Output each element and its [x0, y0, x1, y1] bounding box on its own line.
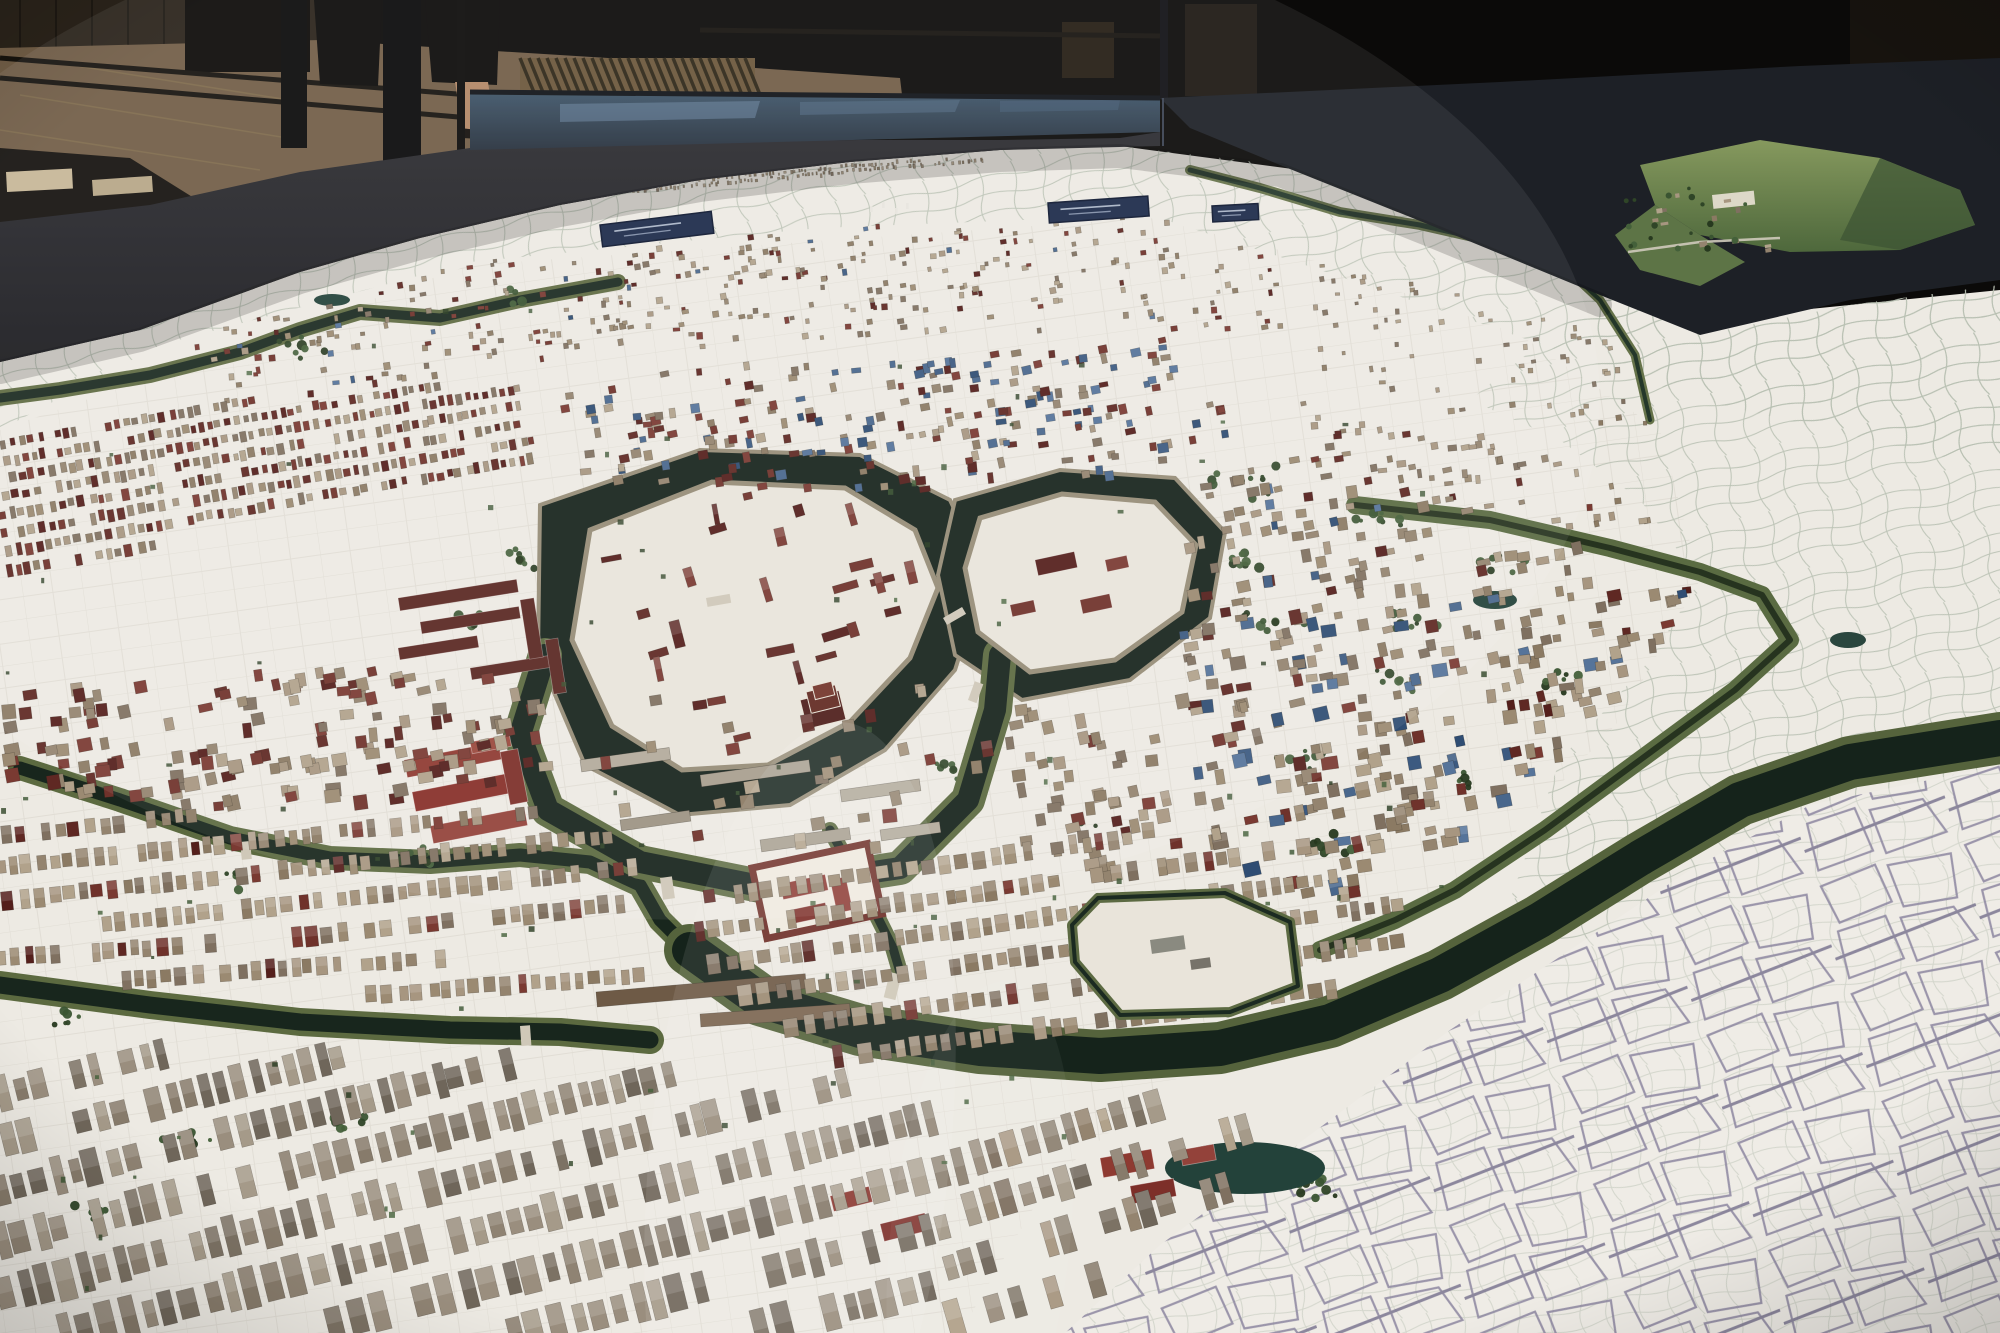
diorama-scene	[0, 0, 2000, 1333]
photo-vignette	[0, 0, 2000, 1333]
museum-diorama-photo	[0, 0, 2000, 1333]
lighting-overlay	[0, 0, 2000, 1333]
